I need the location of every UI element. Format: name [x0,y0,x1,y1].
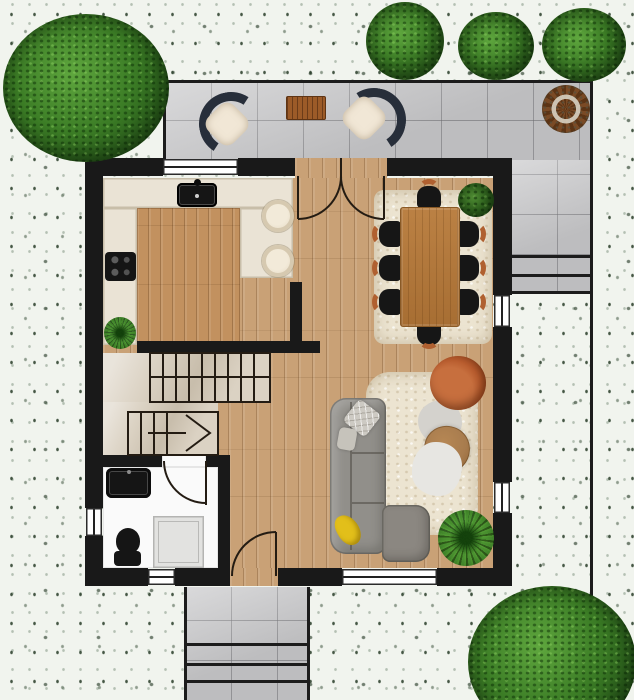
dining-chair-back [470,291,486,313]
dining-chair-back [372,223,388,245]
tree-top-2 [458,12,534,80]
window-dining-right [494,295,510,327]
front-door-threshold [230,568,278,586]
shower-tray [153,516,204,568]
dining-chair-back [372,257,388,279]
floor-plan-canvas [0,0,634,700]
wall-bathroom-right [218,467,230,568]
side-path-step [512,255,590,258]
toilet-tank [114,551,141,566]
accent-armchair [430,356,486,410]
stair-upper-flight-area [103,353,270,402]
cooktop [105,252,136,281]
bathroom-vanity [106,468,151,498]
dining-table [400,207,460,327]
dining-chair-back [419,333,439,349]
dining-chair-back [470,223,486,245]
wall-right [493,327,512,482]
dining-chair-back [372,291,388,313]
terrace-potted-plant [542,85,590,133]
wall-top [387,158,512,176]
french-door-threshold [295,158,387,178]
tree-top-left [3,14,169,162]
sofa-chaise [382,505,430,562]
side-path-step [512,274,590,277]
wall-kitchen-stairs [137,341,320,353]
dining-plant [458,183,494,217]
stair-lower-flight-area [103,402,218,455]
window-kitchen [163,159,238,175]
entry-path-step [186,663,310,666]
bathroom-door-opening [162,455,206,467]
coffee-table-white [412,442,462,496]
bar-stool [262,200,294,232]
entry-path-step [186,643,310,646]
bar-stool [262,245,294,277]
tree-bottom-right [468,586,634,700]
wall-bottom [85,568,148,586]
tree-top-3 [542,8,626,82]
window-bathroom-left [86,508,102,536]
wall-stub [290,282,302,341]
dining-chair-back [419,179,439,195]
terrace-coffee-table [286,96,326,120]
entry-path-step [186,680,310,683]
kitchen-plant [104,317,136,349]
terrace-lounge-chair-left [195,90,255,152]
dining-chair-back [470,257,486,279]
wall-right [493,176,512,295]
window-living-bottom [342,569,437,585]
kitchen-floor [137,208,240,343]
terrace-lounge-chair-right [338,86,398,148]
window-bathroom-bottom [148,569,175,585]
kitchen-sink [177,183,217,207]
terrace-edge-top [163,80,593,83]
palm-plant [438,510,494,566]
wall-bathroom-top [85,455,162,467]
wall-top [238,158,295,176]
wall-bottom [278,568,342,586]
window-living-right [494,482,510,513]
wall-bathroom-top [206,455,230,467]
wall-right [493,513,512,586]
wall-bottom [175,568,230,586]
tree-top-1 [366,2,444,80]
side-path-edge [512,291,590,294]
